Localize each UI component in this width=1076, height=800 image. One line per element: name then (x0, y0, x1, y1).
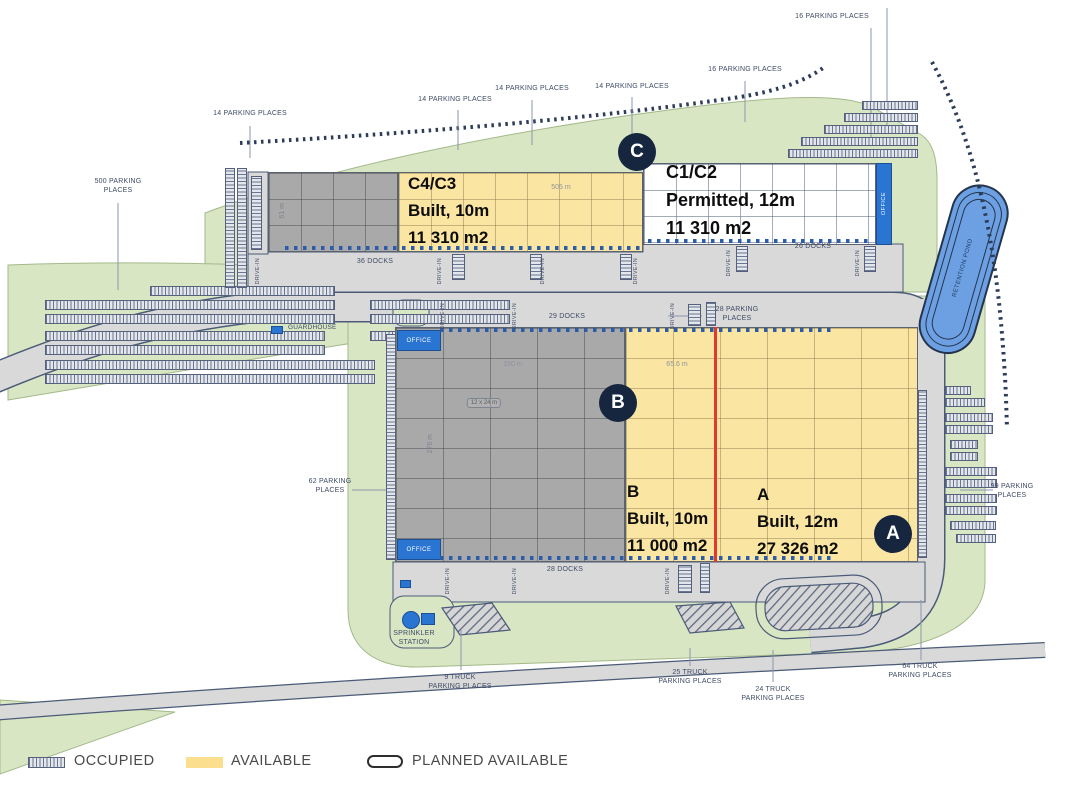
drive-in-ramp (688, 304, 701, 326)
label-guardhouse: GUARDHOUSE (288, 324, 337, 332)
legend-available-label: AVAILABLE (231, 753, 312, 769)
label-drive-in: DRIVE-IN (512, 568, 518, 595)
parking-row (45, 360, 375, 370)
office-label: OFFICE (881, 192, 887, 215)
badge-a: A (874, 515, 912, 553)
building-c43-status: Built, 10m (408, 197, 489, 224)
label-drive-in: DRIVE-IN (670, 303, 676, 330)
label-truck-9: 9 TRUCK PARKING PLACES (428, 674, 491, 691)
small-building (400, 580, 411, 588)
label-drive-in: DRIVE-IN (512, 303, 518, 330)
office-label: OFFICE (407, 338, 432, 344)
label-parking-14: 14 PARKING PLACES (418, 96, 492, 105)
dock-strip (918, 390, 927, 558)
building-b-office-bottom: OFFICE (397, 539, 441, 560)
drive-in-ramp (864, 246, 876, 272)
label-parking-16: 16 PARKING PLACES (795, 13, 869, 22)
label-drive-in: DRIVE-IN (726, 250, 732, 277)
label-parking-62: 62 PARKING PLACES (309, 478, 352, 495)
drive-in-ramp (700, 563, 710, 593)
parking-row (945, 398, 985, 407)
building-c-office-block: OFFICE (876, 163, 892, 245)
building-b-area: 11 000 m2 (627, 532, 708, 559)
label-docks-29: 29 DOCKS (549, 313, 585, 322)
label-parking-16: 16 PARKING PLACES (708, 66, 782, 75)
sprinkler-building (421, 613, 435, 625)
label-docks-28: 28 DOCKS (547, 566, 583, 575)
parking-row (45, 300, 335, 310)
label-drive-in: DRIVE-IN (540, 258, 546, 285)
parking-row (844, 113, 918, 122)
dim-505m: 505 m (551, 184, 570, 191)
legend-planned-swatch (367, 755, 403, 768)
label-sprinkler: SPRINKLER STATION (393, 630, 434, 647)
parking-row (788, 149, 918, 158)
drive-in-ramp (452, 254, 465, 280)
building-c12-area: 11 310 m2 (666, 214, 795, 242)
dim-276m: 276 m (427, 434, 434, 453)
dim-65-6m: 65.6 m (666, 361, 687, 368)
building-a-info: A Built, 12m 27 326 m2 (757, 481, 838, 562)
building-c12-status: Permitted, 12m (666, 186, 795, 214)
office-label: OFFICE (407, 547, 432, 553)
building-c12-info: C1/C2 Permitted, 12m 11 310 m2 (666, 158, 795, 242)
parking-row (956, 534, 996, 543)
building-a-b-divider (714, 327, 717, 562)
label-parking-28: 28 PARKING PLACES (716, 306, 759, 323)
parking-row (45, 314, 335, 324)
site-plan: OFFICE OFFICE OFFICE C4/C3 Built, 10m 11… (0, 0, 1076, 800)
parking-row (950, 440, 978, 449)
label-parking-14: 14 PARKING PLACES (595, 83, 669, 92)
parking-row (45, 374, 375, 384)
building-a-status: Built, 12m (757, 508, 838, 535)
parking-row (45, 345, 325, 355)
parking-column (237, 168, 247, 288)
parking-row (824, 125, 918, 134)
parking-row (945, 494, 997, 503)
label-drive-in: DRIVE-IN (665, 568, 671, 595)
label-drive-in: DRIVE-IN (440, 303, 446, 330)
legend-planned-label: PLANNED AVAILABLE (412, 753, 568, 769)
label-drive-in: DRIVE-IN (255, 258, 261, 285)
label-truck-64: 64 TRUCK PARKING PLACES (888, 663, 951, 680)
building-c43-info: C4/C3 Built, 10m 11 310 m2 (408, 170, 489, 251)
legend-occupied-swatch (28, 757, 65, 768)
label-docks-36: 36 DOCKS (357, 258, 393, 267)
dock-dots (440, 328, 835, 332)
label-drive-in: DRIVE-IN (633, 258, 639, 285)
label-drive-in: DRIVE-IN (855, 250, 861, 277)
dim-bay-12x24: 12 x 24 m (467, 398, 501, 408)
building-b-office-top: OFFICE (397, 330, 441, 351)
label-parking-500: 500 PARKING PLACES (95, 178, 142, 195)
building-c43-name: C4/C3 (408, 170, 489, 197)
legend-occupied-label: OCCUPIED (74, 753, 155, 769)
parking-row (945, 506, 997, 515)
building-a-name: A (757, 481, 838, 508)
label-truck-25: 25 TRUCK PARKING PLACES (658, 669, 721, 686)
parking-row (945, 467, 997, 476)
label-truck-24: 24 TRUCK PARKING PLACES (741, 686, 804, 703)
legend-available-swatch (186, 757, 223, 768)
drive-in-ramp (736, 246, 748, 272)
drive-in-ramp (678, 565, 692, 593)
badge-c: C (618, 133, 656, 171)
label-drive-in: DRIVE-IN (445, 568, 451, 595)
label-drive-in: DRIVE-IN (437, 258, 443, 285)
building-c43-occupied-section (268, 172, 398, 252)
label-parking-99: 99 PARKING PLACES (991, 483, 1034, 500)
building-b-status: Built, 10m (627, 505, 708, 532)
parking-row (945, 479, 997, 488)
label-parking-14: 14 PARKING PLACES (495, 85, 569, 94)
parking-row (801, 137, 918, 146)
parking-column (225, 168, 235, 288)
drive-in-ramp (706, 302, 716, 326)
building-b-info: B Built, 10m 11 000 m2 (627, 478, 708, 559)
parking-row (45, 331, 325, 341)
building-b-name: B (627, 478, 708, 505)
badge-b: B (599, 384, 637, 422)
guardhouse-building (271, 326, 283, 334)
dim-61m: 61 m (279, 203, 286, 219)
parking-row (945, 413, 993, 422)
dock-strip (251, 176, 262, 250)
parking-row (945, 386, 971, 395)
sprinkler-tank (402, 611, 420, 629)
parking-row (950, 521, 996, 530)
parking-row (945, 425, 993, 434)
parking-row (862, 101, 918, 110)
dim-150m: 150 m (503, 361, 522, 368)
label-parking-14: 14 PARKING PLACES (213, 110, 287, 119)
building-a-area: 27 326 m2 (757, 535, 838, 562)
drive-in-ramp (620, 254, 632, 280)
parking-row (950, 452, 978, 461)
label-docks-26: 26 DOCKS (795, 243, 831, 252)
building-c12-name: C1/C2 (666, 158, 795, 186)
building-c43-area: 11 310 m2 (408, 224, 489, 251)
